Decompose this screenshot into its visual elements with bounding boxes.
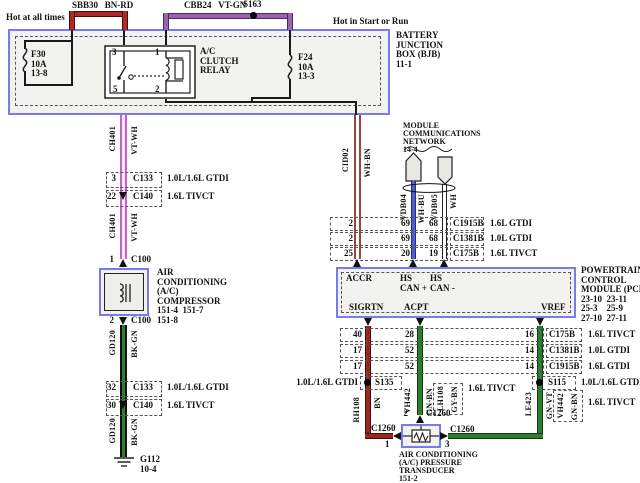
pcm-accr-arrow-icon [353, 259, 361, 267]
row-top-1-pin2: 69 [390, 219, 410, 229]
compressor-pin2: 2 [102, 316, 114, 326]
wire-ch401-color-label: VT-WH [130, 126, 139, 155]
wire-gd120-circuit-label-2: GD120 [108, 418, 117, 444]
bjb-wire-f30-right [71, 30, 73, 86]
row-top-3-conn: C175B [453, 249, 479, 259]
ground-icon [113, 457, 135, 469]
bjb-label: BATTERY JUNCTION BOX (BJB) 11-1 [396, 31, 443, 69]
wire-cbb24-right [287, 13, 293, 30]
alt-vref-circuit-label: VH442 [556, 393, 565, 419]
hot-in-start-or-run-label: Hot in Start or Run [333, 17, 408, 27]
wire-gd120-circuit-label: GD120 [108, 330, 117, 356]
compressor-pin1-arrow-icon [119, 259, 127, 267]
circuit-sbb30-label: SBB30 BN-RD [72, 1, 133, 11]
transducer-pin3: 3 [445, 440, 450, 450]
splice-s115-label: S115 [548, 378, 566, 388]
pcm-pin-hs-can-plus: HS CAN + [400, 274, 427, 293]
c133-bot-note: 1.0L/1.6L GTDI [167, 383, 229, 393]
alt-acpt-note: 1.6L TIVCT [468, 384, 515, 394]
pcm-sigrtn-arrow-icon [364, 318, 372, 326]
row-bot-2-pin3: 14 [512, 346, 534, 356]
alt-vref-note: 1.6L TIVCT [588, 398, 635, 408]
transducer-pin1: 1 [385, 440, 390, 450]
wire-ch401-circuit-label: CH401 [108, 126, 117, 152]
row-bot-2-pin2: 52 [396, 346, 414, 356]
pcm-pin-vref: VREF [541, 303, 566, 313]
wire-ch401-color-label-2: VT-WH [130, 213, 139, 242]
wire-rh108-color-label: BN [373, 397, 382, 409]
pcm-pin-acpt: ACPT [404, 303, 429, 313]
bjb-wire-f24-drop [251, 97, 253, 103]
row-top-2-pin2: 69 [390, 234, 410, 244]
splice-s135-note: 1.0L/1.6L GTDI [296, 378, 358, 388]
transducer-sensor-icon [403, 426, 439, 446]
row-top-2-note: 1.0L GTDI [490, 234, 532, 244]
pcm-acpt-arrow-icon [416, 318, 424, 326]
row-bot-1-pin1: 40 [344, 330, 362, 340]
fuse-f30-label: F30 10A 13-8 [31, 50, 48, 79]
row-bot-2-pin1: 17 [344, 346, 362, 356]
pcm-canp-arrow-icon [409, 259, 417, 267]
fuse-f24-icon [284, 55, 296, 79]
transducer-conn-top: C1260 [426, 409, 451, 419]
c133-top-name: C133 [133, 174, 153, 184]
compressor-clutch-icon [113, 282, 135, 302]
bjb-wire-f24-stub-top [289, 30, 291, 55]
relay-pin-2: 2 [155, 85, 160, 95]
splice-s135-dot [364, 379, 371, 386]
splice-s135-label: S135 [375, 378, 394, 388]
twisted-pair-icon [402, 183, 456, 193]
row-top-3-pin1: 25 [333, 249, 353, 259]
bjb-wire-cid02-exit [355, 101, 357, 115]
c140-top-junction-arrow-icon [119, 192, 127, 200]
c133-top-pin: 3 [104, 174, 116, 184]
row-top-3-pin2: 20 [390, 249, 410, 259]
transducer-conn-left: C1260 [371, 424, 396, 434]
c133-top-note: 1.0L/1.6L GTDI [167, 174, 229, 184]
c133-bot-name: C133 [133, 383, 153, 393]
row-bot-3-pin3: 14 [512, 362, 534, 372]
wire-sbb30-right [122, 11, 128, 30]
wire-cid02-circuit-label: CID02 [341, 148, 350, 172]
relay-pin-3: 3 [112, 48, 117, 58]
compressor-conn1: C100 [131, 255, 151, 265]
wire-rh108-circuit-label: RH108 [352, 397, 361, 423]
compressor-pin2-arrow-icon [119, 317, 127, 325]
bjb-wire-f24-horizontal [251, 97, 291, 99]
alt-acpt-color-label: GY-BN [450, 386, 459, 413]
row-top-1-conn: C1915B [453, 219, 484, 229]
bjb-wire-relay-pin3-stub [123, 30, 125, 45]
bjb-inner-dashed-border [15, 36, 381, 106]
circuit-cbb24-label: CBB24 VT-GN [184, 1, 246, 11]
splice-s115-note: 1.0L/1.6L GTDI [581, 378, 640, 388]
alt-vref-color-label: GN-BN [570, 393, 579, 420]
wire-cbb24-top [163, 13, 293, 19]
row-top-3-pin3: 19 [418, 249, 438, 259]
relay-pin-1: 1 [155, 48, 160, 58]
row-bot-3-pin1: 17 [344, 362, 362, 372]
splice-s163-label: S163 [243, 0, 262, 10]
pcm-pin-sigrtn: SIGRTN [349, 303, 383, 313]
transducer-conn-right: C1260 [450, 425, 475, 435]
row-bot-2-note: 1.0L GTDI [588, 346, 630, 356]
row-bot-2-conn: C1381B [549, 346, 580, 356]
ground-g112-label: G112 10-4 [140, 455, 160, 474]
c140-bot-name: C140 [133, 401, 153, 411]
wire-ch401-circuit-label-2: CH401 [108, 213, 117, 239]
compressor-pin1: 1 [102, 255, 114, 265]
bjb-wire-f30-stub-bottom [24, 71, 26, 86]
bjb-wire-relay-pin1-stub [165, 30, 167, 45]
wire-sbb30-top [69, 11, 128, 17]
bjb-wire-pin2-horizontal [165, 101, 357, 103]
row-top-3-note: 1.6L TIVCT [490, 249, 537, 259]
fuse-f30-icon [19, 48, 31, 72]
wire-sbb30-left [69, 11, 75, 30]
row-bot-3-pin2: 52 [396, 362, 414, 372]
row-bot-1-pin2: 28 [396, 330, 414, 340]
row-top-2-pin1: 2 [333, 234, 353, 244]
row-top-2-conn: C1381B [453, 234, 484, 244]
c140-bot-junction-arrow-icon [119, 401, 127, 409]
wire-cbb24-left [163, 13, 169, 30]
transducer-pin2: 2 [400, 409, 408, 419]
c140-bot-pin: 30 [100, 401, 116, 411]
relay-label: A/C CLUTCH RELAY [200, 47, 239, 76]
row-bot-1-pin3: 16 [512, 330, 534, 340]
pcm-label: POWERTRAIN CONTROL MODULE (PCM) 23-10 23… [581, 266, 640, 323]
c133-bot-pin: 32 [100, 383, 116, 393]
pcm-cann-arrow-icon [440, 259, 448, 267]
row-bot-3-conn: C1915B [549, 362, 580, 372]
compressor-conn2: C100 [131, 316, 151, 326]
splice-s163-dot [250, 12, 257, 19]
pcm-pin-accr: ACCR [346, 274, 372, 284]
splice-s115-dot [536, 379, 543, 386]
c140-bot-note: 1.6L TIVCT [167, 401, 214, 411]
pcm-pin-hs-can-minus: HS CAN - [430, 274, 455, 293]
relay-pin-5: 5 [113, 85, 118, 95]
compressor-label: AIR CONDITIONING (A/C) COMPRESSOR 151-4 … [157, 268, 227, 325]
wiring-diagram: Hot at all times Hot in Start or Run SBB… [0, 0, 640, 483]
transducer-pin2-arrow-icon [416, 415, 424, 423]
row-bot-1-note: 1.6L TIVCT [588, 330, 635, 340]
row-bot-3-note: 1.6L GTDI [588, 362, 630, 372]
fuse-f24-label: F24 10A 13-3 [298, 53, 315, 82]
row-top-2-pin3: 68 [418, 234, 438, 244]
transducer-label: AIR CONDITIONING (A/C) PRESSURE TRANSDUC… [399, 451, 478, 483]
wire-cid02-color-label: WH-BN [363, 148, 372, 178]
transducer-pin1-arrow-icon [393, 432, 401, 440]
c140-top-name: C140 [133, 192, 153, 202]
pcm-vref-arrow-icon [536, 318, 544, 326]
wire-gd120-color-label-2: BK-GN [130, 418, 139, 446]
wire-le423-circuit-label: LE423 [524, 392, 533, 416]
c140-top-note: 1.6L TIVCT [167, 192, 214, 202]
row-top-1-pin1: 2 [333, 219, 353, 229]
hot-at-all-times-label: Hot at all times [6, 13, 65, 23]
row-top-1-pin3: 68 [418, 219, 438, 229]
wire-gd120-color-label: BK-GN [130, 330, 139, 358]
bjb-wire-f30-top [24, 40, 73, 42]
wire-vdb05-color-label: WH [449, 194, 458, 209]
bjb-wire-f24-stub-bottom [289, 79, 291, 99]
row-top-1-note: 1.6L GTDI [490, 219, 532, 229]
bjb-wire-f30-bottom [24, 84, 73, 86]
row-bot-1-conn: C175B [549, 330, 575, 340]
c140-top-pin: 22 [102, 192, 116, 202]
